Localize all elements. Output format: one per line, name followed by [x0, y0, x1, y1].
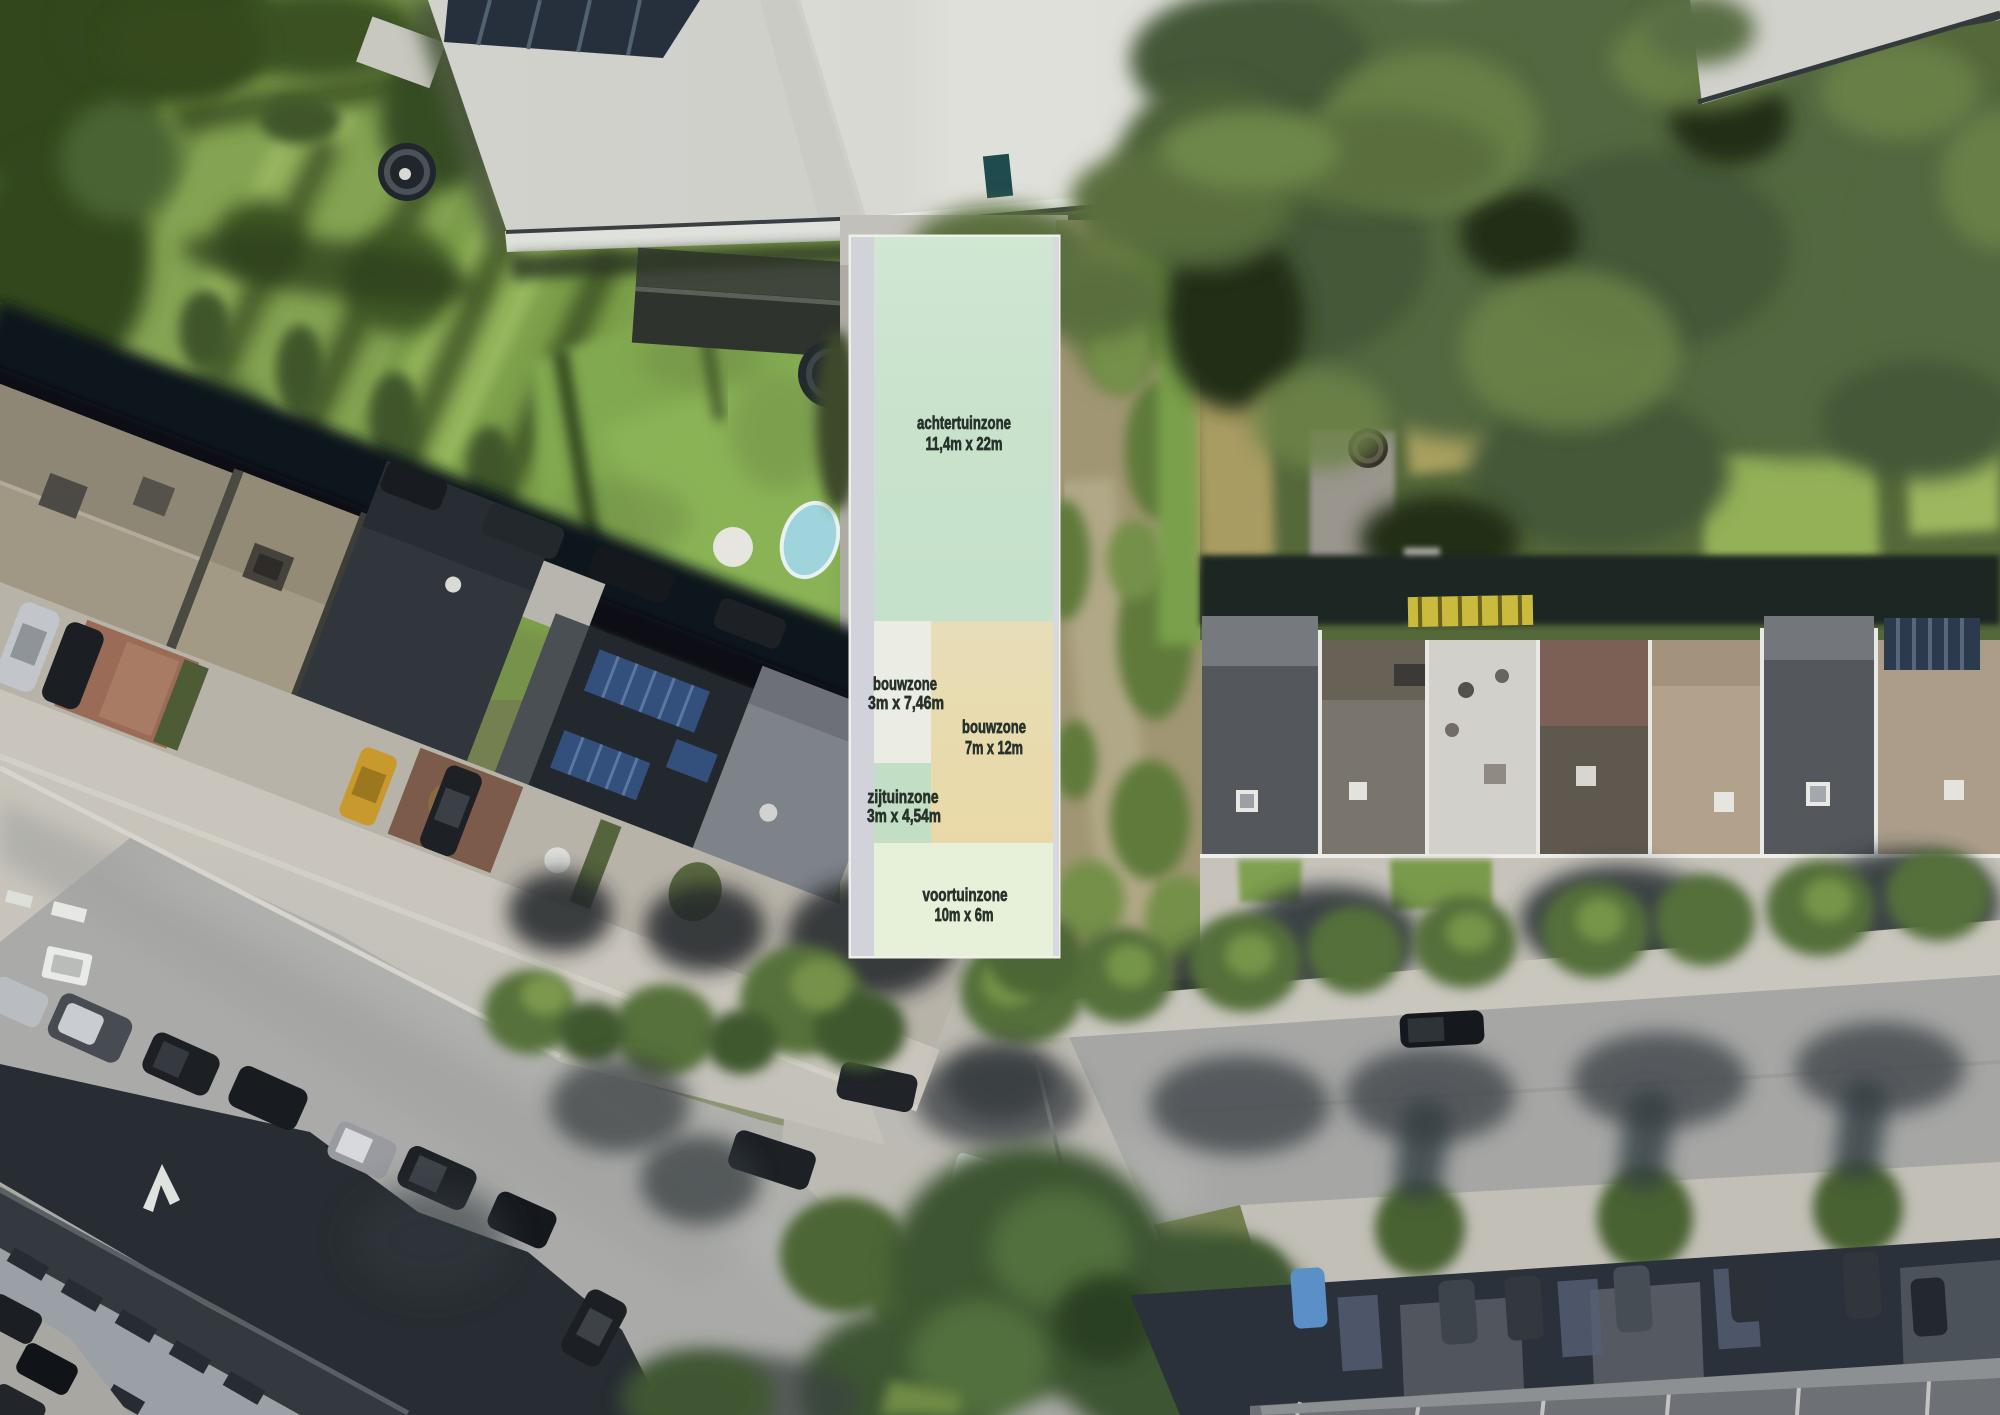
svg-text:7m x 12m: 7m x 12m — [965, 738, 1023, 758]
svg-text:voortuinzone: voortuinzone — [923, 885, 1008, 905]
svg-text:bouwzone: bouwzone — [873, 674, 937, 694]
svg-text:3m x 4,54m: 3m x 4,54m — [867, 806, 941, 826]
svg-text:zijtuinzone: zijtuinzone — [868, 787, 939, 807]
svg-text:10m x 6m: 10m x 6m — [935, 905, 994, 925]
svg-text:3m x 7,46m: 3m x 7,46m — [868, 693, 944, 713]
svg-text:bouwzone: bouwzone — [962, 717, 1026, 737]
svg-text:achtertuinzone: achtertuinzone — [917, 413, 1011, 433]
svg-text:11,4m x 22m: 11,4m x 22m — [926, 434, 1003, 454]
